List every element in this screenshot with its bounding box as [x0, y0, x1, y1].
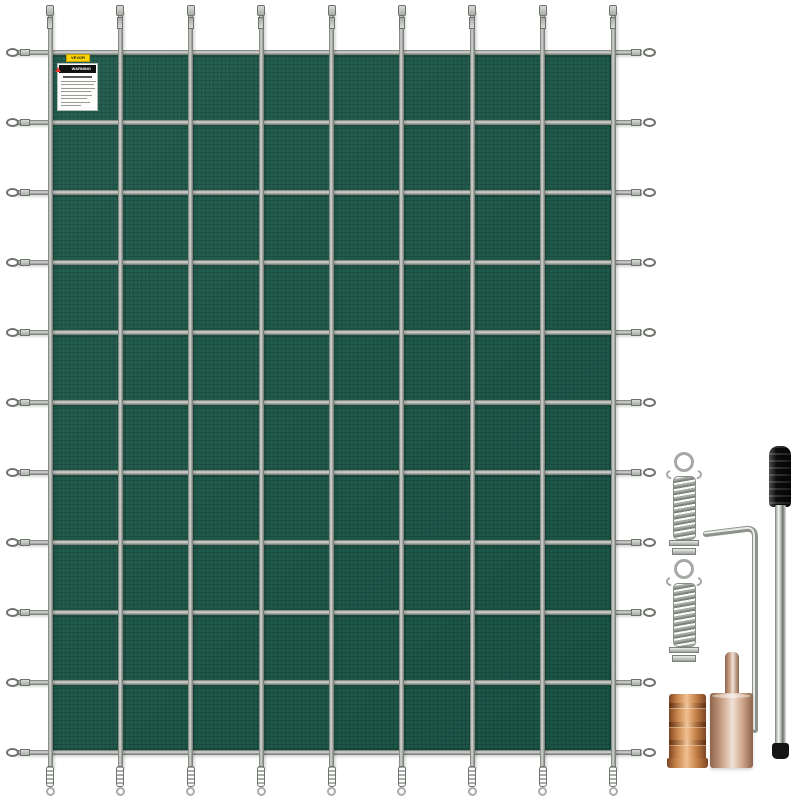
strap-end-loop-icon — [6, 678, 19, 687]
strap-end-clasp-icon — [631, 49, 641, 56]
strap-end-loop-icon — [6, 188, 19, 197]
strap-end-loop-icon — [643, 608, 656, 617]
strap-end-loop-icon — [6, 258, 19, 267]
warning-text-line — [61, 102, 90, 103]
installation-rod-tip — [772, 743, 789, 759]
strap-end-ring-icon — [257, 787, 266, 796]
product-image: VEVOR WARNING — [0, 0, 800, 800]
strap-end-loop-icon — [643, 118, 656, 127]
strap-end-buckle-icon — [468, 5, 476, 16]
cover-strap-horizontal — [14, 750, 642, 755]
strap-end-clasp-icon — [20, 259, 30, 266]
warning-triangle-icon — [55, 67, 61, 72]
strap-end-spring-icon — [328, 766, 336, 787]
strap-end-clasp-icon — [20, 329, 30, 336]
strap-end-buckle-icon — [540, 17, 546, 29]
spring-ring-icon — [674, 559, 694, 579]
strap-end-loop-icon — [643, 468, 656, 477]
brand-tag: VEVOR — [66, 54, 90, 62]
strap-end-ring-icon — [116, 787, 125, 796]
brass-anchor-base — [667, 758, 708, 768]
strap-end-ring-icon — [538, 787, 547, 796]
strap-end-buckle-icon — [47, 17, 53, 29]
warning-header-text: WARNING — [71, 67, 90, 71]
strap-end-clasp-icon — [631, 469, 641, 476]
warning-text-line — [61, 91, 91, 92]
strap-end-clasp-icon — [631, 119, 641, 126]
strap-end-loop-icon — [6, 118, 19, 127]
strap-end-loop-icon — [6, 398, 19, 407]
installation-rod-shaft — [775, 505, 786, 745]
strap-end-loop-icon — [6, 48, 19, 57]
spring-coil-icon — [673, 583, 696, 647]
strap-end-loop-icon — [6, 468, 19, 477]
strap-end-buckle-icon — [116, 5, 124, 16]
strap-end-buckle-icon — [610, 17, 616, 29]
strap-end-loop-icon — [643, 258, 656, 267]
strap-end-loop-icon — [6, 748, 19, 757]
strap-end-clasp-icon — [631, 329, 641, 336]
strap-end-loop-icon — [6, 608, 19, 617]
strap-end-clasp-icon — [631, 189, 641, 196]
strap-end-loop-icon — [643, 748, 656, 757]
strap-end-clasp-icon — [20, 679, 30, 686]
anchor-spring-1 — [666, 452, 704, 558]
cover-strap-vertical — [540, 12, 545, 770]
strap-end-buckle-icon — [117, 17, 123, 29]
strap-end-ring-icon — [468, 787, 477, 796]
strap-end-loop-icon — [643, 328, 656, 337]
strap-end-buckle-icon — [399, 17, 405, 29]
strap-end-ring-icon — [186, 787, 195, 796]
strap-end-buckle-icon — [539, 5, 547, 16]
installation-rod-handle — [769, 446, 791, 507]
brand-tag-text: VEVOR — [71, 56, 85, 60]
spring-buckle-icon — [669, 540, 699, 546]
strap-end-clasp-icon — [20, 49, 30, 56]
cover-strap-vertical — [470, 12, 475, 770]
strap-end-clasp-icon — [631, 259, 641, 266]
strap-end-spring-icon — [609, 766, 617, 787]
strap-end-clasp-icon — [631, 609, 641, 616]
brass-anchor-groove — [669, 703, 706, 708]
strap-end-ring-icon — [46, 787, 55, 796]
spring-buckle-icon — [669, 647, 699, 653]
strap-end-clasp-icon — [20, 469, 30, 476]
strap-end-buckle-icon — [188, 17, 194, 29]
strap-end-loop-icon — [6, 538, 19, 547]
strap-end-loop-icon — [643, 538, 656, 547]
cover-strap-horizontal — [14, 260, 642, 265]
spring-buckle-icon — [672, 655, 696, 662]
warning-text-line — [61, 105, 81, 106]
strap-end-spring-icon — [257, 766, 265, 787]
strap-end-buckle-icon — [398, 5, 406, 16]
strap-end-loop-icon — [6, 328, 19, 337]
warning-text-line — [61, 81, 96, 82]
strap-end-clasp-icon — [20, 539, 30, 546]
strap-end-buckle-icon — [329, 17, 335, 29]
cover-strap-vertical — [399, 12, 404, 770]
strap-end-spring-icon — [468, 766, 476, 787]
brass-anchor — [669, 694, 706, 760]
strap-end-clasp-icon — [20, 609, 30, 616]
cover-strap-horizontal — [14, 120, 642, 125]
brass-anchor-groove — [669, 722, 706, 727]
warning-label: WARNING — [57, 63, 98, 111]
cover-strap-vertical — [611, 12, 616, 770]
warning-text-line — [61, 88, 95, 89]
strap-end-buckle-icon — [328, 5, 336, 16]
warning-subtitle-line — [63, 76, 93, 78]
strap-end-buckle-icon — [258, 17, 264, 29]
warning-text-line — [61, 95, 92, 96]
anchor-spring-2 — [666, 559, 704, 665]
tamping-tool-stem — [725, 652, 739, 696]
brass-anchor-groove — [669, 740, 706, 745]
strap-end-clasp-icon — [20, 119, 30, 126]
strap-end-clasp-icon — [631, 399, 641, 406]
strap-end-buckle-icon — [46, 5, 54, 16]
cover-strap-horizontal — [14, 540, 642, 545]
spring-coil-icon — [673, 476, 696, 540]
strap-end-spring-icon — [46, 766, 54, 787]
cover-strap-vertical — [48, 12, 53, 770]
strap-end-clasp-icon — [631, 539, 641, 546]
cover-strap-horizontal — [14, 50, 642, 55]
spring-buckle-icon — [672, 548, 696, 555]
strap-end-loop-icon — [643, 48, 656, 57]
cover-strap-vertical — [118, 12, 123, 770]
cover-strap-horizontal — [14, 330, 642, 335]
strap-end-clasp-icon — [20, 749, 30, 756]
strap-end-ring-icon — [327, 787, 336, 796]
strap-end-ring-icon — [609, 787, 618, 796]
strap-end-loop-icon — [643, 398, 656, 407]
strap-end-loop-icon — [643, 678, 656, 687]
strap-end-loop-icon — [643, 188, 656, 197]
tamping-tool-body — [710, 693, 753, 768]
strap-end-ring-icon — [397, 787, 406, 796]
cover-strap-horizontal — [14, 680, 642, 685]
cover-strap-vertical — [329, 12, 334, 770]
strap-end-buckle-icon — [257, 5, 265, 16]
strap-end-spring-icon — [116, 766, 124, 787]
warning-text-line — [61, 98, 87, 99]
warning-header: WARNING — [59, 65, 96, 73]
cover-strap-vertical — [188, 12, 193, 770]
strap-end-buckle-icon — [469, 17, 475, 29]
strap-end-spring-icon — [539, 766, 547, 787]
warning-body-text — [59, 81, 96, 107]
strap-end-spring-icon — [187, 766, 195, 787]
strap-end-clasp-icon — [20, 399, 30, 406]
warning-text-line — [61, 84, 94, 85]
strap-end-clasp-icon — [20, 189, 30, 196]
cover-strap-horizontal — [14, 610, 642, 615]
strap-end-clasp-icon — [631, 749, 641, 756]
strap-end-buckle-icon — [609, 5, 617, 16]
strap-end-spring-icon — [398, 766, 406, 787]
cover-strap-horizontal — [14, 400, 642, 405]
spring-ring-icon — [674, 452, 694, 472]
strap-end-clasp-icon — [631, 679, 641, 686]
cover-strap-horizontal — [14, 470, 642, 475]
strap-end-buckle-icon — [187, 5, 195, 16]
cover-strap-vertical — [259, 12, 264, 770]
cover-strap-horizontal — [14, 190, 642, 195]
